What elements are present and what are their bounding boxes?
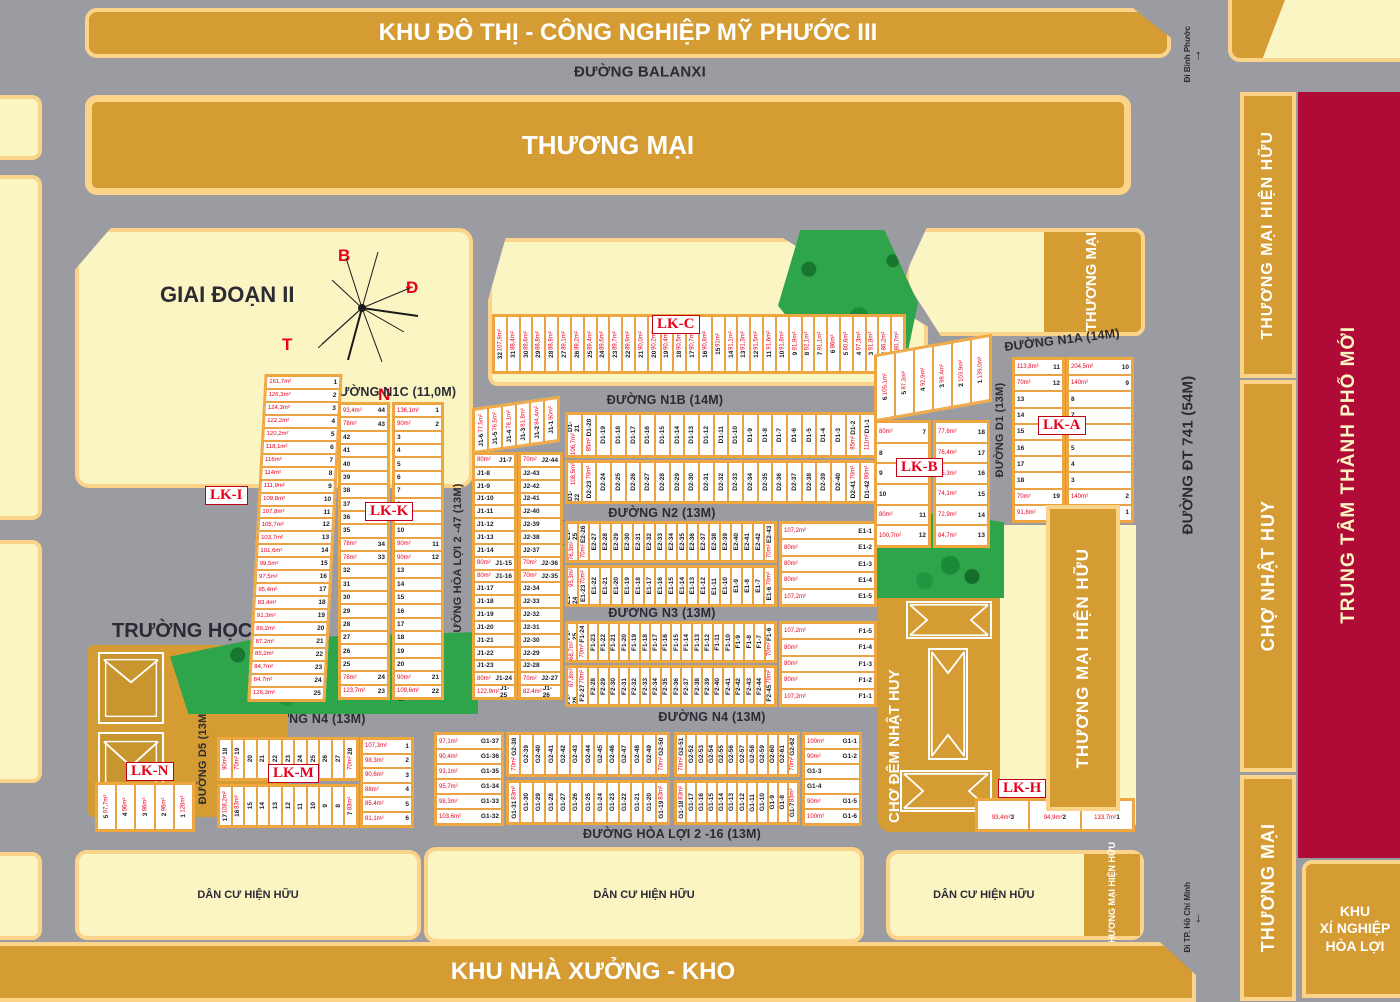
arrow-down-icon: ↓ [1195, 910, 1202, 925]
plot-cell: E2-40 [731, 523, 742, 561]
plot-cell: 118,1m²6 [262, 441, 337, 454]
plot-cell: 15 [244, 786, 257, 826]
plot-cell: E1-16 [655, 567, 666, 605]
plot-cell: 107,8m²11 [259, 506, 334, 519]
plot-cell: E1-2370m² [578, 567, 589, 605]
plot-cell: 70m²G2-38 [508, 734, 520, 775]
plot-cell: 70m²G2-50 [656, 734, 668, 775]
plot-cell: F2-42 [734, 667, 744, 705]
plot-cell: G1-3183m² [508, 782, 520, 823]
plot-cell: E1-14 [677, 567, 688, 605]
plot-cell: 14 [394, 578, 442, 591]
plot-cell: F1-19 [629, 623, 639, 661]
plot-cell: D2-32 [714, 462, 729, 502]
bottom-banner: KHU NHÀ XƯỞNG - KHO [0, 942, 1196, 1002]
plot-cell: E1-9 [731, 567, 742, 605]
plot-cell: 100m²G1-1 [804, 734, 860, 749]
plot-cell: 35 [340, 524, 388, 537]
plot-cell: J2-41 [520, 493, 561, 506]
plot-cell: D2-2370m² [582, 462, 597, 502]
plot-cell: 136,1m²1 [394, 404, 442, 417]
plot-cell: D1-9 [743, 414, 758, 456]
plot-cell: 111m²D1-1 [860, 414, 875, 456]
plot-cell: 114m²8 [261, 467, 336, 480]
plot-cell: F2-37 [681, 667, 691, 705]
plot-cell: 41 [340, 444, 388, 457]
plot-cell: 30 [340, 591, 388, 604]
plot-cell: F2-41 [723, 667, 733, 705]
lk-h-label: LK-H [998, 779, 1046, 798]
plot-cell: 70m²E2-43 [764, 523, 775, 561]
plot-cell: D2-40 [831, 462, 846, 502]
plot-cell: J2-28 [520, 660, 561, 673]
plot-cell: E1-11 [709, 567, 720, 605]
plot-cell: 103,6m²G1-32 [436, 809, 502, 824]
trung-tam-label: TRUNG TÂM THÀNH PHỐ MỚI [1338, 326, 1360, 624]
plot-cell: F1-8 [744, 623, 754, 661]
plot-cell: J2-42 [520, 480, 561, 493]
plot-cell: G2-41 [545, 734, 557, 775]
plot-cell: G2-46 [607, 734, 619, 775]
plot-cell: 90,4m²G1-36 [436, 749, 502, 764]
plot-cell: 5 [394, 457, 442, 470]
dan-cu-label-2: DÂN CƯ HIỆN HỮU [593, 889, 694, 901]
plot-cell: 124,3m²3 [264, 402, 339, 415]
plot-cell: 11 [294, 786, 307, 826]
plot-cell: 3088,6m² [520, 316, 533, 372]
plot-cell: 496m² [116, 784, 135, 830]
plot-cell: G2-49 [643, 734, 655, 775]
plot-cell: 991,9m² [789, 316, 802, 372]
plot-cell: 2888,9m² [545, 316, 558, 372]
e-top-plots: 76,3m²E1-2570m²E2-26E2-27E2-28E2-29E2-30… [565, 521, 777, 563]
f-right-plots: 107,2m²F1-580m²F1-480m²F1-380m²F1-2107,2… [779, 621, 877, 707]
plot-cell: F1-13 [692, 623, 702, 661]
cho-nhat-huy-strip: CHỢ NHẬT HUY [1240, 380, 1296, 772]
plot-cell: 90m²11 [394, 538, 442, 551]
plot-cell: 123,7m²23 [340, 685, 388, 698]
plot-cell: G1-25 [582, 782, 594, 823]
f-bottom-plots: F1-2687,8m²F2-2770m²F2-28F2-29F2-30F2-31… [565, 665, 777, 707]
dan-cu-block-3: DÂN CƯ HIỆN HỮU THƯƠNG MẠI HIỆN HỮU [886, 850, 1144, 940]
plot-cell: 80m²J1-15 [474, 557, 515, 570]
lk-a-label: LK-A [1038, 416, 1086, 435]
plot-cell: 78m²24 [340, 671, 388, 684]
plot-cell: 161,7m²1 [266, 376, 341, 389]
lk-k-label: LK-K [365, 502, 413, 521]
ne-corner-gold [1232, 0, 1288, 58]
plot-cell: J2-43 [520, 467, 561, 480]
plot-cell: F2-38 [692, 667, 702, 705]
plot-cell: 93,4m²3 [977, 800, 1029, 830]
plot-cell: 13 [394, 564, 442, 577]
plot-cell: F2-40 [713, 667, 723, 705]
plot-cell: F1-22 [598, 623, 608, 661]
plot-cell: J1-576,5m² [488, 406, 502, 450]
d-top-plots: 106,7m²D1-2185m²D1-20D1-19D1-18D1-17D1-1… [565, 412, 877, 458]
plot-cell: E1-8 [742, 567, 753, 605]
plot-cell: 76,4m²17 [935, 443, 988, 464]
road-n1c-label: ĐƯỜNG N1C (11,0M) [330, 385, 457, 399]
plot-cell: 6 [394, 471, 442, 484]
j-left-plots: 80m²J1-7J1-8J1-9J1-10J1-11J1-12J1-13J1-1… [472, 452, 517, 700]
plot-cell: J2-31 [520, 621, 561, 634]
dan-cu-block-2: DÂN CƯ HIỆN HỮU [424, 847, 864, 943]
plot-cell: E1-19 [622, 567, 633, 605]
plot-cell: 16 [1014, 440, 1063, 456]
plot-cell: 3 [394, 431, 442, 444]
plot-cell: 10 [307, 786, 320, 826]
plot-cell: D2-34 [743, 462, 758, 502]
plot-cell: 16 [394, 604, 442, 617]
lk-c-label: LK-C [652, 315, 700, 334]
thuong-mai-hien-huu-right-label: THƯƠNG MẠI HIỆN HỮU [1259, 131, 1277, 340]
plot-cell: 5 [1068, 440, 1132, 456]
thuong-mai-banner-label: THƯƠNG MẠI [522, 130, 694, 161]
thuong-mai-hien-huu-small-label: THƯƠNG MẠI HIỆN HỮU [1107, 842, 1118, 949]
left-strip-1 [0, 95, 42, 160]
plot-cell: 2103,9m² [952, 339, 971, 406]
plot-cell: E2-34 [666, 523, 677, 561]
plot-cell: D2-38 [802, 462, 817, 502]
lk-n-label: LK-N [126, 762, 174, 781]
plot-cell: F2-39 [702, 667, 712, 705]
plot-cell: 13 [1014, 391, 1063, 407]
plot-cell: 70m²J2-36 [520, 557, 561, 570]
plot-cell: 2489,6m² [597, 316, 610, 372]
plot-cell: D1-18 [611, 414, 626, 456]
plot-cell: 204,5m²10 [1068, 359, 1132, 375]
plot-cell: 2589,4m² [584, 316, 597, 372]
plot-cell: 116m²7 [262, 454, 337, 467]
plot-cell: J2-33 [520, 595, 561, 608]
plot-cell: 2389,7m² [609, 316, 622, 372]
plot-cell: 1191,6m² [763, 316, 776, 372]
plot-cell: 80m²F1-3 [781, 656, 875, 672]
plot-cell: 70m²28 [344, 739, 357, 779]
plot-cell: 90m²12 [394, 551, 442, 564]
lk-a-right-plots: 204,5m²10140m²9876543140m²2228,1m²1 [1066, 357, 1134, 523]
plot-cell: J1-190m² [544, 398, 558, 442]
plot-cell: E2-31 [633, 523, 644, 561]
khu-xi-nghiep-line3: HÒA LỢI [1320, 938, 1391, 956]
plot-cell: E1-22 [589, 567, 600, 605]
plot-cell: D2-37 [787, 462, 802, 502]
plot-cell: 85m²D1-2 [846, 414, 861, 456]
plot-cell: F1-9 [734, 623, 744, 661]
plot-cell: 77,6m²18 [935, 422, 988, 443]
plot-cell: G1-8 [778, 782, 788, 823]
plot-cell: F1-23 [588, 623, 598, 661]
plot-cell: J2-30 [520, 634, 561, 647]
d-bottom-plots: D1-22108,5m²D2-2370m²D2-24D2-25D2-26D2-2… [565, 460, 877, 504]
plot-cell: G2-58 [747, 734, 757, 775]
plot-cell: J1-23 [474, 660, 515, 673]
j-right-plots: 70m²J2-44J2-43J2-42J2-41J2-40J2-39J2-38J… [518, 452, 563, 700]
plot-cell: G2-53 [696, 734, 706, 775]
plot-cell: 107,2m²E1-5 [781, 589, 875, 605]
plot-cell: 12 [282, 786, 295, 826]
plot-cell: 32107,9m² [494, 316, 507, 372]
plot-cell: 95,4m²17 [255, 583, 330, 596]
ne-corner-block [1228, 0, 1400, 62]
plot-cell: 90m²G1-2 [804, 749, 860, 764]
plot-cell: G2-48 [631, 734, 643, 775]
plot-cell: 80m²7 [876, 422, 929, 443]
plot-cell: G1-3 [804, 764, 860, 779]
plot-cell: 9 [319, 786, 332, 826]
plot-cell: 126,3m²25 [250, 687, 325, 700]
giai-doan-ii-label: GIAI ĐOẠN II [160, 282, 294, 308]
plot-cell: G1-4 [804, 779, 860, 794]
plot-cell: E2-42 [753, 523, 764, 561]
plot-cell: E1-20 [611, 567, 622, 605]
plot-cell: D2-27 [640, 462, 655, 502]
plot-cell: 4 [394, 444, 442, 457]
plot-cell: 18 [1014, 472, 1063, 488]
plot-cell: 26 [340, 644, 388, 657]
plot-cell: 78m²33 [340, 551, 388, 564]
khu-xi-nghiep-line2: XÍ NGHIỆP [1320, 920, 1391, 938]
plot-cell: 80m²J1-7 [474, 454, 515, 467]
plot-cell: E2-36 [687, 523, 698, 561]
plot-cell: F1-21 [609, 623, 619, 661]
plot-cell: G1-24 [594, 782, 606, 823]
cho-nhat-huy-label: CHỢ NHẬT HUY [1258, 500, 1279, 651]
plot-cell: 111,9m²9 [260, 480, 335, 493]
plot-cell: 70m²F1-6 [765, 623, 775, 661]
plot-cell: G2-42 [557, 734, 569, 775]
plot-cell: 89,2m²20 [253, 622, 328, 635]
plot-cell: 85m²D1-20 [582, 414, 597, 456]
plot-cell: J1-18 [474, 595, 515, 608]
road-hoa-loi-2-47-label: ĐƯỜNG HÒA LỢI 2 -47 (13M) [452, 483, 464, 640]
plot-cell: 17 [1014, 456, 1063, 472]
plot-cell: F2-35 [661, 667, 671, 705]
lk-b-left-plots: 80m²7891080m²11100,7m²12 [874, 420, 931, 548]
e-bottom-plots: E1-2495,3m²E1-2370m²E1-22E1-21E1-20E1-19… [565, 565, 777, 607]
plot-cell: 1591m² [712, 316, 725, 372]
plot-cell: F2-29 [598, 667, 608, 705]
plot-cell: E1-7 [753, 567, 764, 605]
plot-cell: 1126m² [174, 784, 193, 830]
plot-cell: G2-60 [768, 734, 778, 775]
plot-cell: D1-17 [626, 414, 641, 456]
plot-cell: G1-13 [727, 782, 737, 823]
plot-cell: 90m²G1-5 [804, 794, 860, 809]
lk-m-label: LK-M [268, 764, 319, 783]
plot-cell: 97,5m²16 [256, 570, 331, 583]
plot-cell: 78m²43 [340, 417, 388, 430]
plot-cell: 140m²9 [1068, 375, 1132, 391]
plot-cell: 93,1m²G1-35 [436, 764, 502, 779]
plot-cell: 93,4m²18 [254, 596, 329, 609]
plot-cell: 70m²J2-27 [520, 672, 561, 685]
plot-cell: 1091,8m² [776, 316, 789, 372]
thuong-mai-hien-huu-mid-strip: THƯƠNG MẠI HIỆN HỮU [1046, 505, 1120, 811]
plot-cell: D1-4290m² [860, 462, 875, 502]
plot-cell: G1-12 [737, 782, 747, 823]
plot-cell: G1-14 [717, 782, 727, 823]
plot-cell: F1-14 [681, 623, 691, 661]
plot-cell: F2-34 [650, 667, 660, 705]
plot-cell: J1-9 [474, 480, 515, 493]
plot-cell: 17 [394, 618, 442, 631]
plot-cell: J1-8 [474, 467, 515, 480]
plot-cell: 1139,0m² [971, 336, 990, 403]
plot-cell: 101,6m²14 [257, 544, 332, 557]
plot-cell: 107,3m²1 [362, 739, 412, 754]
top-banner-label: KHU ĐÔ THỊ - CÔNG NGHIỆP MỸ PHƯỚC III [379, 19, 878, 47]
road-d5-label: ĐƯỜNG D5 (13M) [197, 710, 209, 805]
plot-cell: F2-33 [640, 667, 650, 705]
plot-cell: 20 [394, 658, 442, 671]
plot-cell: J2-29 [520, 647, 561, 660]
plot-cell: 686m² [827, 316, 840, 372]
plot-cell: G1-20 [643, 782, 655, 823]
plot-cell: J2-32 [520, 608, 561, 621]
plot-cell: E1-12 [698, 567, 709, 605]
plot-cell: 75,3m²16 [935, 463, 988, 484]
plot-cell: 82,4m²J1-26 [520, 685, 561, 698]
plot-cell: 91,3m²19 [254, 609, 329, 622]
plot-cell: 31 [340, 578, 388, 591]
plot-cell: J2-34 [520, 582, 561, 595]
plot-cell: D1-8 [758, 414, 773, 456]
g-bot-b-plots: G1-1883m²G1-17G1-16G1-15G1-14G1-13G1-12G… [674, 780, 800, 825]
di-binh-phuoc-label: Đi Bình Phước [1183, 26, 1192, 82]
plot-cell: 70m²19 [232, 739, 245, 779]
plot-cell: D2-33 [728, 462, 743, 502]
g-top-a-plots: 70m²G2-38G2-39G2-40G2-41G2-42G2-43G2-44G… [506, 732, 670, 777]
plot-cell: 88m²4 [362, 783, 412, 798]
plot-cell: G1-783m² [788, 782, 798, 823]
lk-i-label: LK-I [205, 486, 248, 505]
plot-cell: G1-30 [520, 782, 532, 823]
plot-cell: 109,6m²22 [394, 685, 442, 698]
plot-cell: D1-19 [596, 414, 611, 456]
plot-cell: 95,7m²G1-34 [436, 779, 502, 794]
plot-cell: J1-17 [474, 582, 515, 595]
plot-cell: 27 [332, 739, 345, 779]
plot-cell: F1-2687,8m² [567, 667, 577, 705]
plot-cell: D2-36 [772, 462, 787, 502]
plot-cell: J1-19 [474, 608, 515, 621]
plot-cell: J1-10 [474, 493, 515, 506]
plot-cell: G2-45 [594, 734, 606, 775]
plot-cell: D1-10 [728, 414, 743, 456]
plot-cell: J1-11 [474, 505, 515, 518]
thuong-mai-right-strip: THƯƠNG MẠI [1240, 775, 1296, 1001]
plot-cell: J1-22 [474, 647, 515, 660]
plot-cell: D2-31 [699, 462, 714, 502]
plot-cell: G1-29 [533, 782, 545, 823]
plot-cell: J1-284,4m² [530, 400, 544, 444]
plot-cell: 107,2m²F1-5 [781, 623, 875, 639]
plot-cell: E2-35 [677, 523, 688, 561]
plot-cell: 107,2m²F1-1 [781, 689, 875, 705]
plot-cell: 3 [1068, 472, 1132, 488]
plot-cell: F2-43 [744, 667, 754, 705]
plot-cell: 85,4m²5 [362, 797, 412, 812]
plot-cell: J1-478,1m² [502, 404, 516, 448]
plot-cell: G2-39 [520, 734, 532, 775]
plot-cell: F2-2770m² [577, 667, 587, 705]
plot-cell: D2-26 [626, 462, 641, 502]
plot-cell: F1-18 [640, 623, 650, 661]
plot-cell: 1391,3m² [737, 316, 750, 372]
plot-cell: 80m²E1-4 [781, 572, 875, 588]
plot-cell: 109,8m²10 [260, 493, 335, 506]
plot-cell: 1683m² [232, 786, 245, 826]
plot-cell: G1-15 [707, 782, 717, 823]
road-n4-right-label: ĐƯỜNG N4 (13M) [658, 710, 765, 724]
plot-cell: 19 [394, 644, 442, 657]
plot-cell: E1-21 [600, 567, 611, 605]
lk-a-left-plots: 113,8m²1170m²1213141516171870m²1991,8m²2… [1012, 357, 1065, 523]
plot-cell: 113,8m²11 [1014, 359, 1063, 375]
plot-cell: 29 [340, 604, 388, 617]
plot-cell: 40 [340, 457, 388, 470]
plot-cell: G1-28 [545, 782, 557, 823]
plot-cell: G1-1983m² [656, 782, 668, 823]
plot-cell: G2-55 [717, 734, 727, 775]
plot-cell: 103,7m²13 [258, 531, 333, 544]
khu-xi-nghiep-line1: KHU [1320, 903, 1391, 921]
plot-cell: 70m²19 [1014, 489, 1063, 505]
plot-cell: J2-40 [520, 505, 561, 518]
plot-cell: J1-13 [474, 531, 515, 544]
plot-cell: G1-22 [619, 782, 631, 823]
bottom-banner-label: KHU NHÀ XƯỞNG - KHO [451, 958, 735, 986]
plot-cell: 2689,2m² [571, 316, 584, 372]
plot-cell: F2-28 [588, 667, 598, 705]
plot-cell: D1-4 [816, 414, 831, 456]
plot-cell: 70m²G2-51 [676, 734, 686, 775]
plot-cell: D2-30 [684, 462, 699, 502]
plot-cell: 90m²21 [394, 671, 442, 684]
plot-cell: E1-670m² [764, 567, 775, 605]
plot-cell: D1-14 [670, 414, 685, 456]
plot-cell: 10 [394, 524, 442, 537]
plot-cell: G2-52 [686, 734, 696, 775]
plot-cell: F2-36 [671, 667, 681, 705]
plot-cell: D2-24 [596, 462, 611, 502]
plot-cell: G1-21 [631, 782, 643, 823]
plot-cell: G1-27 [557, 782, 569, 823]
lk-k-right-plots: 136,1m²190m²234567891090m²1190m²12131415… [392, 402, 444, 700]
plot-cell: F1-15 [671, 623, 681, 661]
compass-west-label: T [282, 335, 292, 355]
plot-cell: D1-13 [684, 414, 699, 456]
plot-cell: 17108,2m² [219, 786, 232, 826]
plot-cell: J1-381,8m² [516, 402, 530, 446]
e-right-plots: 107,2m²E1-180m²E1-280m²E1-380m²E1-4107,2… [779, 521, 877, 607]
plot-cell: 106,7m²D1-21 [567, 414, 582, 456]
plot-cell: 93,4m²44 [340, 404, 388, 417]
plot-cell: 140m²2 [1068, 489, 1132, 505]
plot-cell: 84,7m²23 [251, 661, 326, 674]
thuong-mai-ne-gold: THƯƠNG MẠI [1044, 232, 1141, 332]
road-d1-label: ĐƯỜNG D1 (13M) [994, 383, 1006, 478]
road-dt741-label: ĐƯỜNG ĐT 741 (54M) [1180, 376, 1197, 535]
plot-cell: 70m²J2-44 [520, 454, 561, 467]
plot-cell: D1-15 [655, 414, 670, 456]
plot-cell: 80m²F1-2 [781, 672, 875, 688]
plot-cell: 76,3m²E1-25 [567, 523, 578, 561]
thuong-mai-banner: THƯƠNG MẠI [85, 95, 1131, 195]
lk-m-bottom-plots: 17108,2m²1683m²15141312111098783m² [217, 784, 359, 828]
